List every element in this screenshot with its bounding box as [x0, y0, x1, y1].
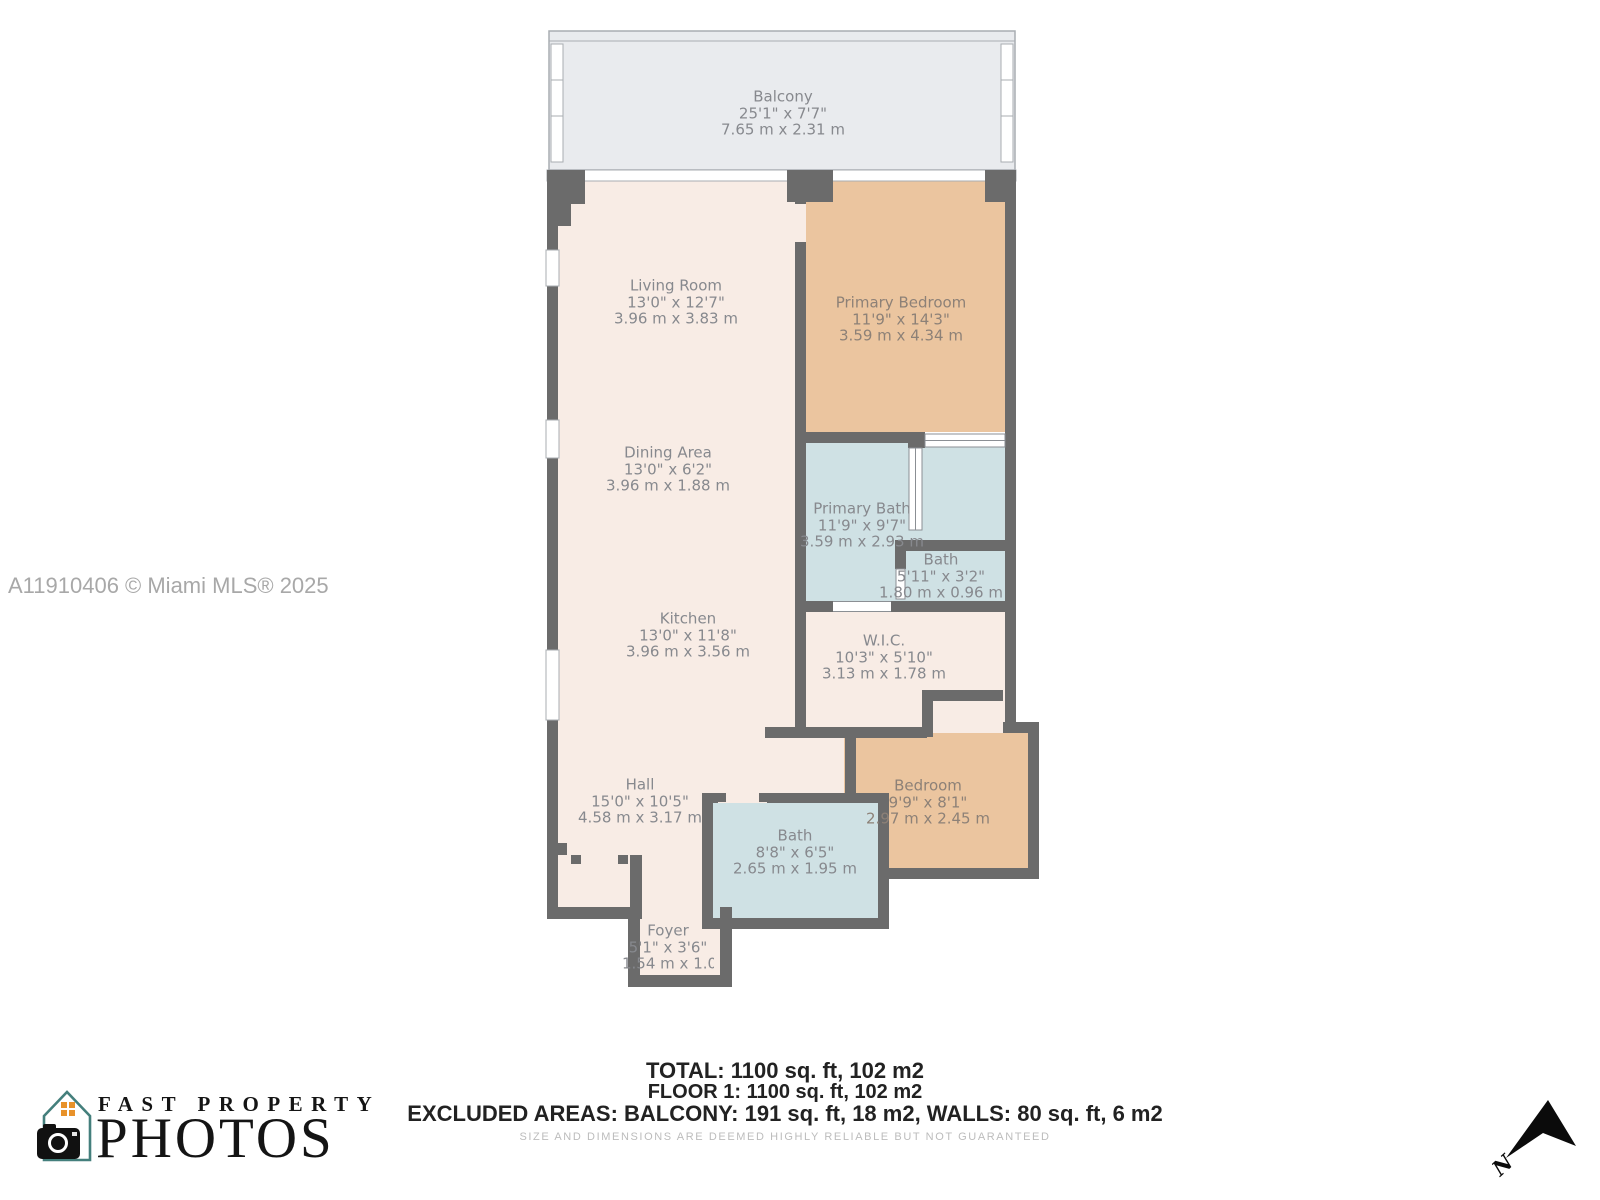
- camera-icon: [37, 1124, 80, 1159]
- fast-property-photos-logo: FAST PROPERTY PHOTOS: [36, 1080, 366, 1180]
- mls-watermark: A11910406 © Miami MLS® 2025: [8, 573, 329, 599]
- balcony-rail-right-icon: [1001, 44, 1013, 162]
- house-camera-icon: [36, 1084, 102, 1176]
- floorplan-drawing: [0, 0, 1600, 1200]
- room-fill-nook: [933, 701, 1003, 733]
- door-opening-icon: [833, 601, 891, 612]
- window-icon: [546, 650, 559, 720]
- logo-line2: PHOTOS: [96, 1106, 335, 1171]
- door-leaf-icon: [896, 569, 905, 599]
- door-leaf-icon: [909, 448, 922, 530]
- floorplan-page: Balcony 25'1" x 7'7" 7.65 m x 2.31 m Liv…: [0, 0, 1600, 1200]
- window-icon: [546, 420, 559, 458]
- north-compass-icon: N: [1492, 1096, 1592, 1186]
- window-panes-icon: [61, 1102, 75, 1116]
- room-fill-primary-bedroom: [806, 181, 1005, 432]
- compass-n-label: N: [1492, 1149, 1518, 1182]
- balcony-rail-left-icon: [551, 44, 563, 162]
- room-fill-bath2: [713, 803, 878, 918]
- closet-slider-icon: [925, 434, 1005, 447]
- sliding-glass-wall: [547, 170, 1016, 181]
- balcony-area: [549, 31, 1015, 170]
- window-icon: [546, 250, 559, 286]
